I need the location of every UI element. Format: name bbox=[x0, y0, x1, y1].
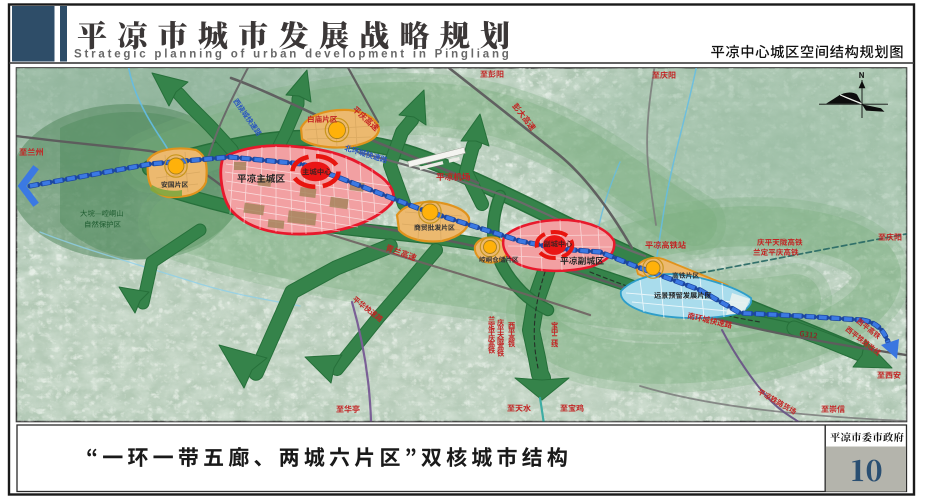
svg-text:Strategic planning of urban de: Strategic planning of urban development … bbox=[74, 49, 512, 61]
